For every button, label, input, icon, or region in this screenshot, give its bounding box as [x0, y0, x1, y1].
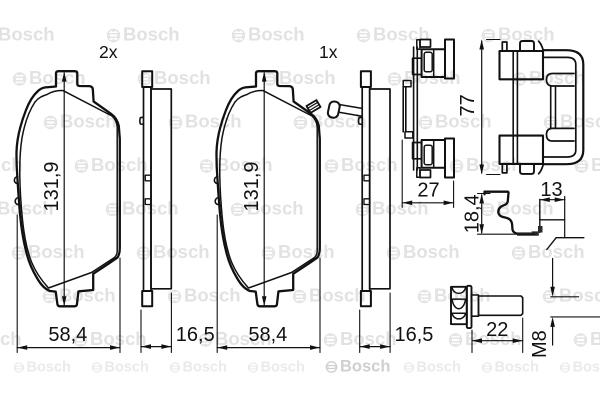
svg-text:131,9: 131,9 — [41, 161, 63, 211]
svg-text:13: 13 — [540, 179, 562, 201]
svg-text:22: 22 — [486, 319, 508, 341]
svg-text:2x: 2x — [99, 42, 118, 62]
svg-text:16,5: 16,5 — [395, 324, 434, 346]
svg-text:1x: 1x — [319, 42, 338, 62]
svg-text:58,4: 58,4 — [48, 324, 87, 346]
svg-text:18,4: 18,4 — [462, 194, 484, 233]
svg-text:58,4: 58,4 — [248, 324, 287, 346]
svg-text:77: 77 — [457, 94, 479, 116]
svg-text:16,5: 16,5 — [176, 324, 215, 346]
svg-text:131,9: 131,9 — [241, 161, 263, 211]
svg-text:M8: M8 — [529, 330, 551, 358]
svg-text:27: 27 — [417, 180, 439, 202]
